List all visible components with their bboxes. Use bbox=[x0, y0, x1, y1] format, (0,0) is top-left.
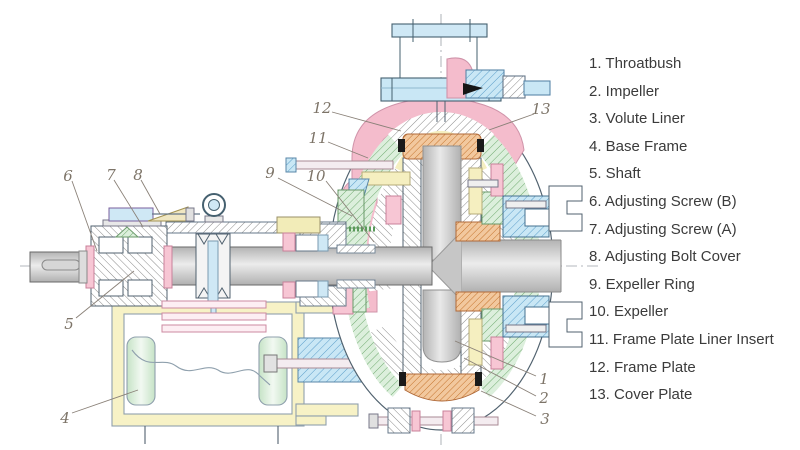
throatbush bbox=[456, 222, 500, 241]
tie-rods bbox=[162, 301, 266, 332]
adjusting-screw-a bbox=[109, 208, 153, 221]
parts-list: 1. Throatbush 2. Impeller 3. Volute Line… bbox=[589, 50, 797, 409]
legend-item: 8. Adjusting Bolt Cover bbox=[589, 243, 797, 271]
callout-2: 2 bbox=[538, 389, 549, 407]
pump-diagram-figure: 1 2 3 4 5 6 7 8 9 10 11 12 13 1. Throatb… bbox=[0, 0, 800, 450]
callout-3: 3 bbox=[540, 410, 550, 428]
legend-item: 7. Adjusting Screw (A) bbox=[589, 216, 797, 244]
legend-item: 12. Frame Plate bbox=[589, 354, 797, 382]
legend-item: 9. Expeller Ring bbox=[589, 271, 797, 299]
expeller-ring bbox=[337, 245, 375, 253]
legend-item: 4. Base Frame bbox=[589, 133, 797, 161]
frame-foot bbox=[127, 337, 155, 405]
callout-5: 5 bbox=[64, 315, 74, 333]
callout-10: 10 bbox=[306, 167, 326, 185]
callout-13: 13 bbox=[531, 100, 550, 118]
callout-6: 6 bbox=[63, 167, 73, 185]
callout-7: 7 bbox=[106, 166, 116, 184]
legend-item: 5. Shaft bbox=[589, 160, 797, 188]
expeller bbox=[386, 196, 401, 224]
callout-8: 8 bbox=[133, 166, 143, 184]
discharge-flange bbox=[381, 19, 550, 101]
throatbush bbox=[456, 292, 500, 311]
legend-item: 10. Expeller bbox=[589, 298, 797, 326]
legend-item: 6. Adjusting Screw (B) bbox=[589, 188, 797, 216]
impeller-hub-bottom bbox=[423, 290, 461, 362]
suction-bore bbox=[462, 240, 561, 292]
legend-item: 2. Impeller bbox=[589, 78, 797, 106]
callout-12: 12 bbox=[312, 99, 331, 117]
expeller-ring bbox=[337, 280, 375, 288]
callout-1: 1 bbox=[539, 370, 549, 388]
legend-item: 3. Volute Liner bbox=[589, 105, 797, 133]
legend-item: 11. Frame Plate Liner Insert bbox=[589, 326, 797, 354]
callout-11: 11 bbox=[308, 129, 327, 147]
legend-item: 13. Cover Plate bbox=[589, 381, 797, 409]
callout-9: 9 bbox=[265, 164, 275, 182]
callout-4: 4 bbox=[59, 409, 70, 427]
legend-item: 1. Throatbush bbox=[589, 50, 797, 78]
shaft-keyway bbox=[42, 260, 80, 270]
